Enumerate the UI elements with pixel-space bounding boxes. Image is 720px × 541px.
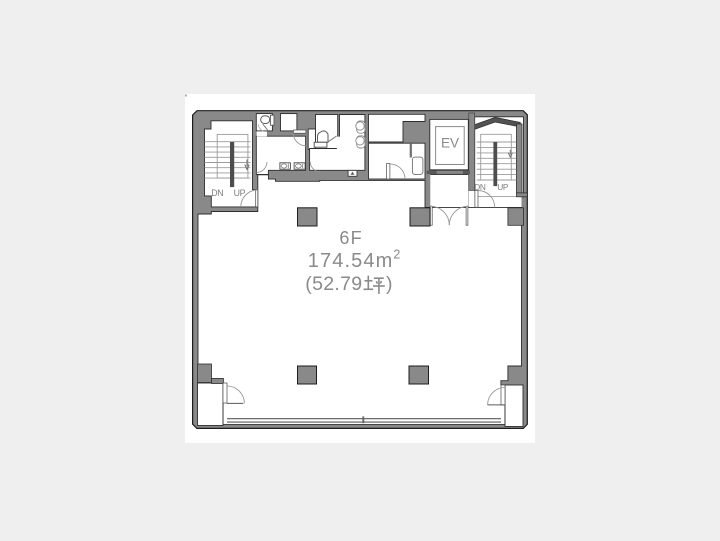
svg-text:DN: DN	[211, 188, 223, 198]
svg-text:6F: 6F	[339, 228, 362, 248]
svg-text:EV: EV	[441, 135, 459, 150]
svg-text:): )	[386, 273, 393, 295]
svg-text:UP: UP	[497, 182, 509, 192]
svg-text:(52.79: (52.79	[305, 273, 362, 295]
svg-text:174.54m2: 174.54m2	[308, 248, 401, 273]
